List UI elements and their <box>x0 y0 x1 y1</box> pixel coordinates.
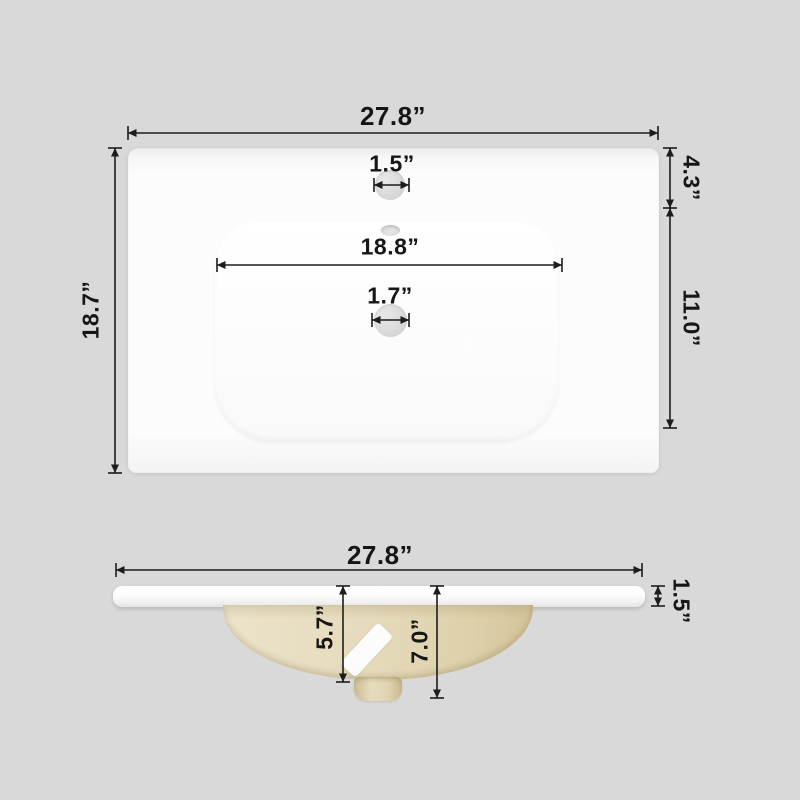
drain-hole <box>374 304 407 337</box>
dimension-diagram: 27.8” 18.7” 4.3” 11.0” 1.5” 18.8” 1.7” 2… <box>0 0 800 800</box>
label-side-width: 27.8” <box>347 542 413 568</box>
drain-stub <box>354 677 402 701</box>
label-bowl-depth: 5.7” <box>314 604 337 649</box>
label-total-depth: 7.0” <box>409 618 432 663</box>
sink-side-countertop <box>113 586 645 607</box>
label-faucet-to-basin-front: 11.0” <box>680 289 703 347</box>
label-top-width: 27.8” <box>360 103 426 129</box>
highlight-speck <box>462 342 467 347</box>
label-top-depth: 18.7” <box>80 281 103 340</box>
label-countertop-thickness: 1.5” <box>670 578 693 623</box>
sink-top-view <box>128 148 659 473</box>
label-basin-width: 18.8” <box>361 236 420 259</box>
label-edge-to-faucet: 4.3” <box>680 155 703 200</box>
label-drain-hole: 1.7” <box>367 285 412 308</box>
label-faucet-hole: 1.5” <box>369 153 414 176</box>
